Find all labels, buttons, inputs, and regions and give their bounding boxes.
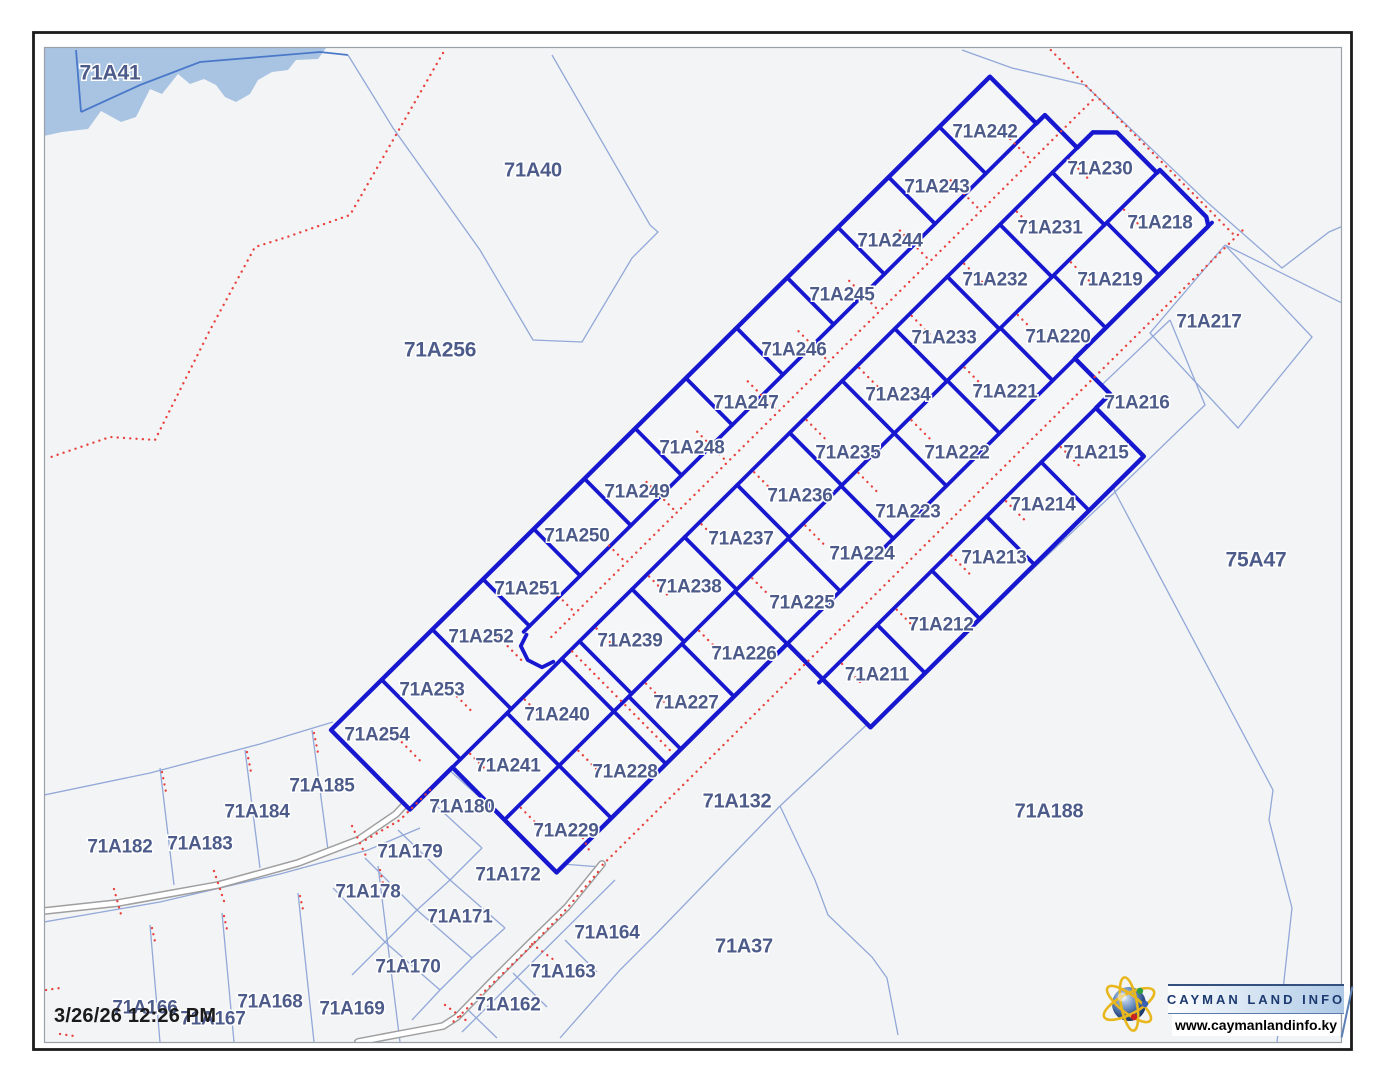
- parcel-label-71A185[interactable]: 71A185: [289, 776, 355, 797]
- parcel-label-71A231[interactable]: 71A231: [1017, 218, 1083, 239]
- parcel-label-71A216[interactable]: 71A216: [1104, 393, 1169, 414]
- parcel-label-71A251[interactable]: 71A251: [494, 579, 560, 600]
- parcel-label-71A249[interactable]: 71A249: [604, 482, 669, 503]
- parcel-label-71A40[interactable]: 71A40: [504, 160, 562, 182]
- parcel-label-71A248[interactable]: 71A248: [659, 438, 724, 459]
- timestamp: 3/26/26 12:26 PM: [54, 1005, 216, 1028]
- parcel-label-71A253[interactable]: 71A253: [399, 680, 464, 701]
- parcel-label-71A170[interactable]: 71A170: [375, 957, 440, 978]
- parcel-label-71A162[interactable]: 71A162: [475, 995, 540, 1016]
- parcel-label-71A250[interactable]: 71A250: [544, 526, 609, 547]
- parcel-label-71A241[interactable]: 71A241: [475, 756, 541, 777]
- parcel-label-71A171[interactable]: 71A171: [427, 907, 493, 928]
- parcel-label-71A218[interactable]: 71A218: [1127, 213, 1192, 234]
- parcel-label-71A235[interactable]: 71A235: [815, 443, 881, 464]
- parcel-label-71A214[interactable]: 71A214: [1010, 495, 1076, 516]
- parcel-label-71A168[interactable]: 71A168: [237, 992, 302, 1013]
- parcel-label-71A256[interactable]: 71A256: [404, 339, 476, 362]
- globe-icon: [1096, 964, 1166, 1044]
- parcel-label-75A47[interactable]: 75A47: [1226, 549, 1287, 572]
- map-viewport[interactable]: 71A24271A24371A24471A24571A24671A24771A2…: [0, 0, 1383, 1084]
- parcel-label-71A247[interactable]: 71A247: [713, 393, 778, 414]
- parcel-label-71A132[interactable]: 71A132: [703, 791, 772, 813]
- cayman-land-info-logo[interactable]: CAYMAN LAND INFO www.caymanlandinfo.ky: [1096, 964, 1350, 1048]
- parcel-label-71A183[interactable]: 71A183: [167, 834, 232, 855]
- parcel-label-71A233[interactable]: 71A233: [911, 328, 976, 349]
- parcel-label-71A179[interactable]: 71A179: [377, 842, 442, 863]
- parcel-label-71A226[interactable]: 71A226: [711, 644, 776, 665]
- parcel-label-71A244[interactable]: 71A244: [857, 231, 923, 252]
- logo-title: CAYMAN LAND INFO: [1168, 984, 1344, 1014]
- parcel-label-71A221[interactable]: 71A221: [972, 382, 1038, 403]
- parcel-label-71A215[interactable]: 71A215: [1063, 443, 1129, 464]
- parcel-label-71A237[interactable]: 71A237: [708, 529, 773, 550]
- parcel-label-71A224[interactable]: 71A224: [829, 544, 895, 565]
- parcel-label-71A236[interactable]: 71A236: [767, 486, 832, 507]
- parcel-label-71A184[interactable]: 71A184: [224, 802, 290, 823]
- map-layers: 71A24271A24371A24471A24571A24671A24771A2…: [44, 48, 1352, 1042]
- parcel-label-71A232[interactable]: 71A232: [962, 270, 1027, 291]
- parcel-label-71A240[interactable]: 71A240: [524, 705, 589, 726]
- map-canvas[interactable]: 71A24271A24371A24471A24571A24671A24771A2…: [0, 0, 1383, 1084]
- parcel-label-71A213[interactable]: 71A213: [961, 548, 1026, 569]
- parcel-label-71A180[interactable]: 71A180: [429, 797, 494, 818]
- parcel-label-71A242[interactable]: 71A242: [952, 122, 1017, 143]
- parcel-label-71A164[interactable]: 71A164: [574, 923, 640, 944]
- parcel-label-71A182[interactable]: 71A182: [87, 837, 152, 858]
- parcel-label-71A212[interactable]: 71A212: [908, 615, 973, 636]
- parcel-label-71A234[interactable]: 71A234: [865, 385, 931, 406]
- parcel-label-71A41[interactable]: 71A41: [80, 62, 141, 85]
- parcel-label-71A230[interactable]: 71A230: [1067, 159, 1132, 180]
- parcel-label-71A220[interactable]: 71A220: [1025, 327, 1090, 348]
- parcel-label-71A227[interactable]: 71A227: [653, 693, 718, 714]
- parcel-label-71A245[interactable]: 71A245: [809, 285, 875, 306]
- parcel-label-71A219[interactable]: 71A219: [1077, 270, 1142, 291]
- parcel-label-71A211[interactable]: 71A211: [845, 665, 910, 686]
- parcel-label-71A178[interactable]: 71A178: [335, 882, 400, 903]
- parcel-label-71A254[interactable]: 71A254: [344, 725, 410, 746]
- parcel-label-71A229[interactable]: 71A229: [533, 821, 598, 842]
- parcel-label-71A188[interactable]: 71A188: [1015, 801, 1084, 823]
- parcel-label-71A228[interactable]: 71A228: [592, 762, 657, 783]
- parcel-label-71A222[interactable]: 71A222: [924, 443, 989, 464]
- parcel-label-71A243[interactable]: 71A243: [904, 177, 969, 198]
- parcel-label-71A163[interactable]: 71A163: [530, 962, 595, 983]
- parcel-label-71A252[interactable]: 71A252: [448, 627, 513, 648]
- parcel-label-71A225[interactable]: 71A225: [769, 593, 835, 614]
- parcel-label-71A169[interactable]: 71A169: [319, 999, 384, 1020]
- logo-url-link[interactable]: www.caymanlandinfo.ky: [1172, 1014, 1340, 1036]
- parcel-label-71A239[interactable]: 71A239: [597, 631, 662, 652]
- parcel-label-71A223[interactable]: 71A223: [875, 502, 940, 523]
- parcel-label-71A238[interactable]: 71A238: [656, 577, 721, 598]
- parcel-label-71A217[interactable]: 71A217: [1176, 312, 1241, 333]
- parcel-label-71A246[interactable]: 71A246: [761, 340, 826, 361]
- parcel-label-71A172[interactable]: 71A172: [475, 865, 540, 886]
- parcel-label-71A37[interactable]: 71A37: [715, 936, 773, 958]
